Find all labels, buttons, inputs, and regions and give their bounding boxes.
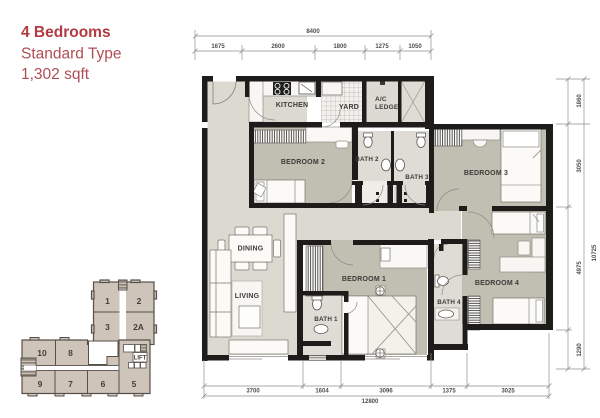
svg-text:Standard Type: Standard Type <box>21 46 122 63</box>
svg-text:1275: 1275 <box>375 44 389 50</box>
svg-text:3: 3 <box>105 322 110 332</box>
svg-text:BATH 4: BATH 4 <box>437 299 461 306</box>
svg-text:10: 10 <box>37 348 47 358</box>
svg-text:1604: 1604 <box>315 389 329 395</box>
svg-text:BEDROOM 2: BEDROOM 2 <box>281 159 325 166</box>
svg-text:DINING: DINING <box>238 246 264 253</box>
svg-text:A/C: A/C <box>375 96 387 103</box>
svg-text:BEDROOM 1: BEDROOM 1 <box>342 276 386 283</box>
svg-text:2600: 2600 <box>271 44 285 50</box>
svg-text:7: 7 <box>68 379 73 389</box>
svg-text:6: 6 <box>101 379 106 389</box>
svg-text:3025: 3025 <box>501 389 515 395</box>
svg-text:LIVING: LIVING <box>235 293 260 300</box>
svg-text:8400: 8400 <box>306 29 320 35</box>
svg-text:LEDGE: LEDGE <box>375 104 399 111</box>
svg-text:KITCHEN: KITCHEN <box>276 102 309 109</box>
svg-text:BEDROOM 3: BEDROOM 3 <box>464 170 508 177</box>
svg-text:3050: 3050 <box>577 159 583 173</box>
svg-text:1,302 sqft: 1,302 sqft <box>21 66 90 83</box>
svg-text:3700: 3700 <box>246 389 260 395</box>
svg-text:8: 8 <box>68 348 73 358</box>
svg-text:BATH 1: BATH 1 <box>314 316 338 323</box>
svg-text:10725: 10725 <box>592 244 598 261</box>
svg-text:1675: 1675 <box>211 44 225 50</box>
svg-text:1860: 1860 <box>577 94 583 108</box>
svg-text:1: 1 <box>105 296 110 306</box>
svg-text:12800: 12800 <box>362 399 379 405</box>
svg-text:4 Bedrooms: 4 Bedrooms <box>21 24 111 41</box>
svg-text:4975: 4975 <box>577 261 583 275</box>
svg-text:3096: 3096 <box>379 389 393 395</box>
svg-text:YARD: YARD <box>339 104 359 111</box>
svg-text:9: 9 <box>38 379 43 389</box>
svg-text:1375: 1375 <box>442 389 456 395</box>
svg-text:2A: 2A <box>133 322 144 332</box>
svg-text:2: 2 <box>137 296 142 306</box>
svg-text:BEDROOM 4: BEDROOM 4 <box>475 280 519 287</box>
svg-text:1290: 1290 <box>577 343 583 357</box>
svg-text:1050: 1050 <box>408 44 422 50</box>
svg-text:LIFT: LIFT <box>134 356 147 362</box>
svg-text:1800: 1800 <box>333 44 347 50</box>
svg-text:5: 5 <box>132 379 137 389</box>
svg-text:BATH 3: BATH 3 <box>405 174 429 181</box>
svg-text:BATH 2: BATH 2 <box>355 156 379 163</box>
